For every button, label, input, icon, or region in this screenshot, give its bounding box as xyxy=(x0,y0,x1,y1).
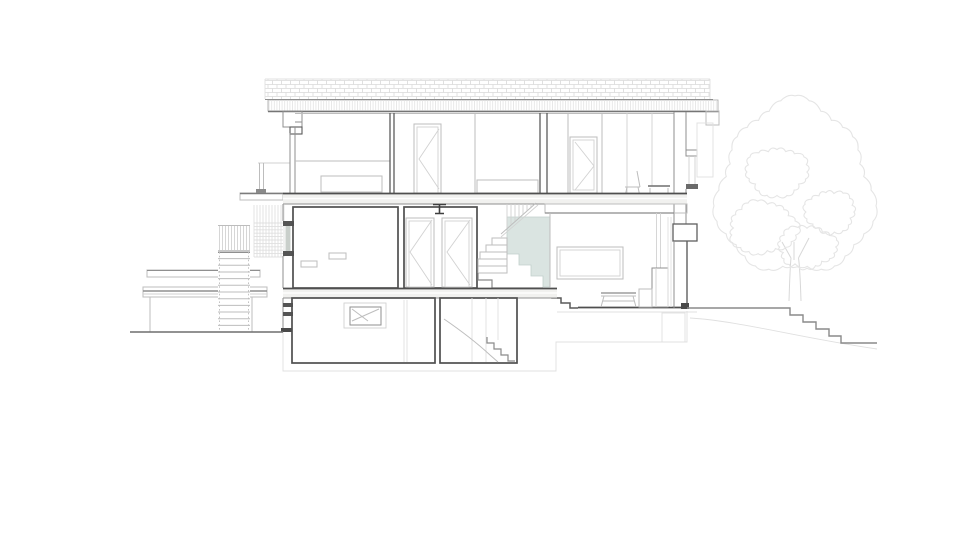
upper-floor-slab xyxy=(283,193,687,213)
tread xyxy=(486,245,507,252)
hall-door-1-swing xyxy=(410,220,432,285)
living-ceiling-beam xyxy=(545,204,687,213)
terrain-steps-right xyxy=(687,308,877,343)
bedroom-right xyxy=(568,113,670,202)
hall-door-2-swing xyxy=(447,220,470,285)
dresser xyxy=(321,176,382,192)
right-wall-block xyxy=(673,224,697,241)
tread xyxy=(480,252,507,259)
trellis-horizontal-slats xyxy=(254,223,283,257)
ceiling-notch xyxy=(295,113,302,122)
flat-roof xyxy=(265,79,719,134)
downstand-head-box xyxy=(290,127,302,134)
bedroom-left xyxy=(295,113,394,193)
door-leaf-2 xyxy=(573,140,594,190)
hall-door-1-leaf xyxy=(409,221,431,287)
window-sill-out xyxy=(686,150,697,156)
upper-floor xyxy=(290,112,713,225)
tree-crown xyxy=(713,95,877,270)
entry-floor-slab xyxy=(283,288,557,298)
external-stair xyxy=(218,205,284,332)
wall-finish-lines xyxy=(668,217,671,307)
terrain-curve xyxy=(690,318,877,349)
roof-slab-hatch xyxy=(268,100,718,111)
entry-canopy xyxy=(240,163,290,200)
sideboard xyxy=(639,289,652,307)
coffee-table-legs xyxy=(601,296,636,307)
stair-flight-treads xyxy=(478,238,507,273)
tilt-window-symbol xyxy=(352,309,379,321)
right-window xyxy=(689,156,695,184)
tread xyxy=(478,266,507,273)
wall-fixture-2 xyxy=(329,253,346,259)
exterior-duct xyxy=(697,123,713,177)
tread xyxy=(492,238,507,245)
bed xyxy=(477,180,538,193)
stair-room-lines xyxy=(472,298,498,362)
stair-room-outline xyxy=(440,298,517,363)
tread xyxy=(478,259,507,266)
right-wall-upper xyxy=(674,112,713,225)
door-frame xyxy=(414,124,441,193)
partition-wall xyxy=(390,113,394,193)
tree-foliage-cluster xyxy=(745,148,809,198)
right-wall-lines xyxy=(674,112,686,225)
cellar-partition xyxy=(404,300,407,362)
drawing-canvas xyxy=(0,0,960,540)
living-room xyxy=(557,213,697,312)
basement-steps xyxy=(487,337,515,361)
section-drawing xyxy=(0,0,960,540)
picture-window-inner xyxy=(560,250,620,276)
trellis-vertical-slats xyxy=(254,205,284,257)
tree-foliage-cluster xyxy=(803,191,856,235)
downpipe-spout xyxy=(256,189,266,193)
deciduous-tree xyxy=(713,95,877,301)
balustrade-balusters xyxy=(220,226,250,250)
basement xyxy=(281,298,517,363)
right-window-sill xyxy=(686,184,698,189)
partition-wall-2 xyxy=(540,113,547,193)
wall-fixture-1 xyxy=(301,261,317,267)
bedroom-middle xyxy=(414,113,547,193)
stove xyxy=(652,268,668,307)
downpipe xyxy=(260,163,264,193)
room-left-outline xyxy=(293,207,398,288)
roof-hatch xyxy=(265,79,710,100)
stair-string-curve xyxy=(444,319,498,362)
picture-window-outer xyxy=(557,247,623,279)
door-swing-2 xyxy=(575,142,594,190)
door-swing xyxy=(419,129,439,189)
foundation-under-right-wall xyxy=(662,313,685,342)
upper-left-wall xyxy=(290,127,295,193)
steel-beam-symbol xyxy=(433,205,446,214)
hallway-outline xyxy=(404,207,477,288)
cellar-room-outline xyxy=(292,298,435,363)
stair-wall-beyond xyxy=(507,217,550,287)
window-glazing xyxy=(286,226,291,251)
stove-flue xyxy=(657,213,661,268)
terrain xyxy=(283,311,877,371)
wardrobe-line-2 xyxy=(627,113,652,193)
desk-legs xyxy=(650,188,668,193)
hall-door-2-frame xyxy=(442,218,472,287)
